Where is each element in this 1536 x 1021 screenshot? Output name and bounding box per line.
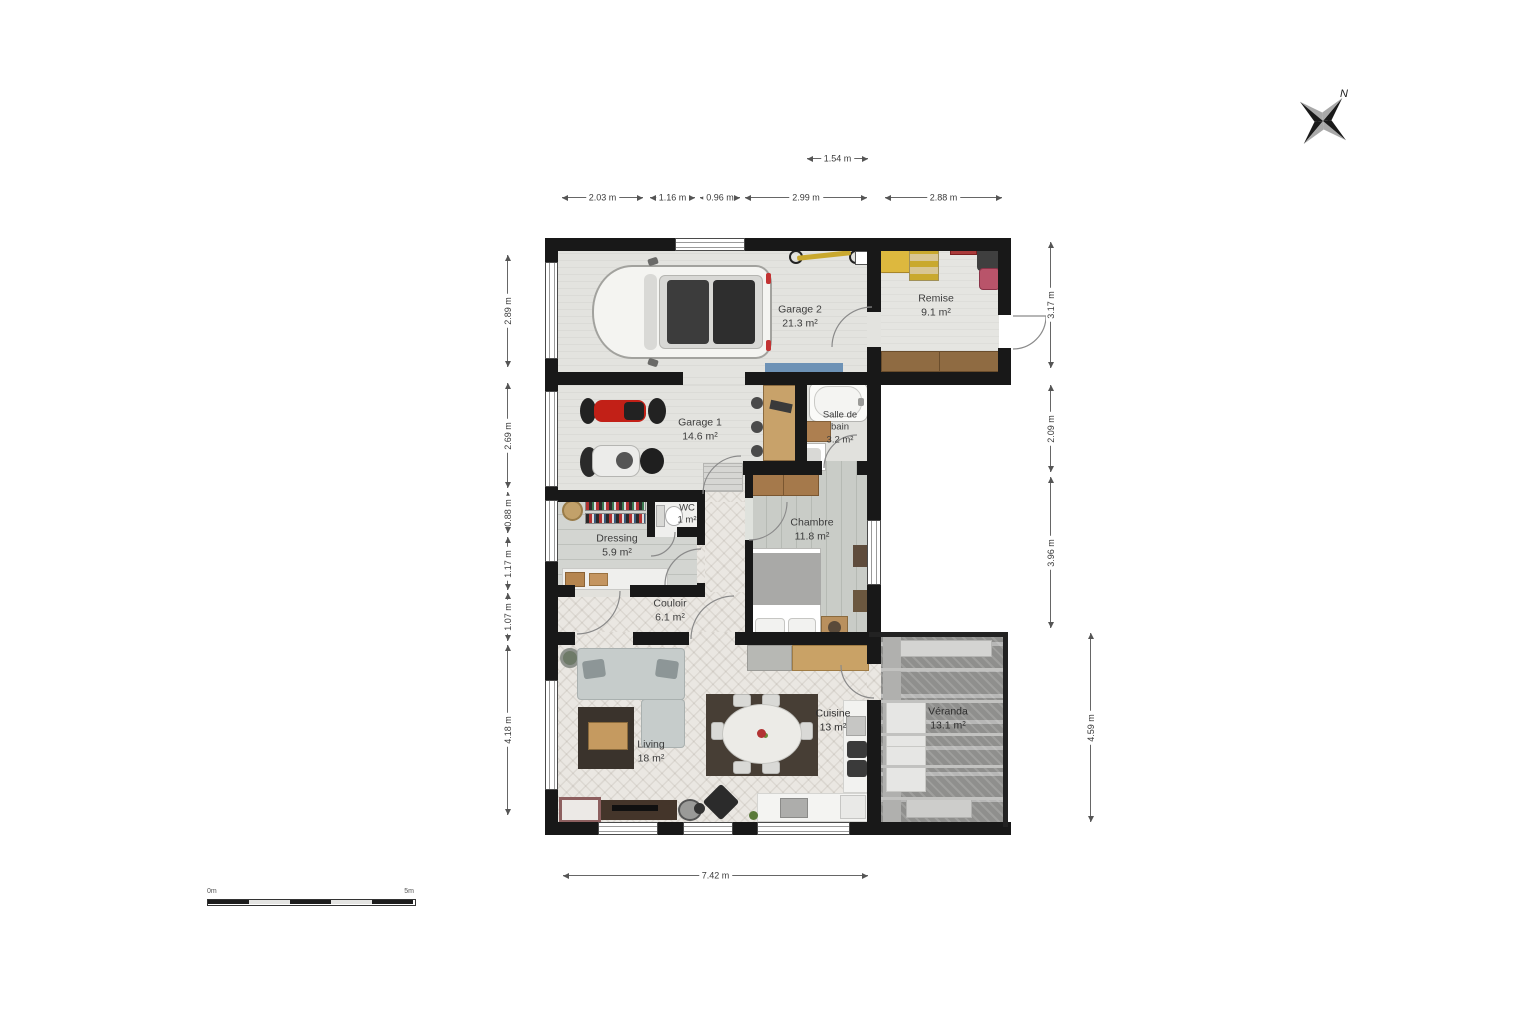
wall-segment [998,238,1011,315]
wall-segment [545,490,703,502]
window-garage2-top [675,238,745,251]
window-garage2-left [545,262,558,359]
wall-segment [545,585,575,597]
floor-plan: Garage 2 21.3 m² Remise 9.1 m² Garage 1 … [0,0,1536,1021]
garage1-label: Garage 1 14.6 m² [678,416,722,443]
armchair-pink [559,797,601,823]
wall-segment [857,461,869,475]
blue-mat [765,363,843,372]
wall-segment [633,632,689,645]
veranda-sofa [886,700,926,792]
veranda-mullion-2 [881,700,1003,703]
veranda-mullion-5 [881,797,1003,800]
dim-left-6: 4.18 m [507,645,508,815]
window-living-left [545,680,558,790]
wc-label: WC 1 m² [678,503,697,528]
bath-faucet [858,398,864,406]
kitchen-plant [749,811,758,820]
dim-left-5: 1.07 m [507,593,508,641]
wall-segment [743,461,822,475]
wall-segment [545,238,675,251]
wall-segment [697,490,705,545]
wall-segment [745,372,1011,385]
chambre-door-gap [745,498,753,540]
cuisine-label: Cuisine 13 m² [815,707,850,734]
scale-seg [249,900,290,904]
kitchen-appliance [780,798,808,818]
g2-remise-door-gap [867,312,881,347]
dim-left-4: 1.17 m [507,537,508,590]
toilet-tank [656,505,665,527]
garage2-label: Garage 2 21.3 m² [778,303,822,330]
clothes-rack-2 [585,513,646,524]
veranda-wall-right [1003,632,1008,827]
veranda-bench-bottom [906,799,972,818]
workbench [763,385,799,461]
wall-segment [545,632,575,645]
dim-bottom: 7.42 m [563,875,868,876]
dim-right-1: 3.17 m [1050,242,1051,368]
dressing-leg-door-gap [697,545,705,583]
scale-seg [372,900,413,904]
dressing-label: Dressing 5.9 m² [596,532,637,559]
couloir-label: Couloir 6.1 m² [653,597,686,624]
scale-start-label: 0m [207,888,217,895]
sofa-cushion-left [582,659,606,680]
cooktop-1 [847,741,867,758]
scale-end-label: 5m [404,888,414,895]
wall-segment [745,461,753,498]
wall-segment [658,822,683,835]
chambre-mat-2 [853,590,868,612]
chambre-mat-1 [853,545,868,567]
window-garage1-left [545,391,558,487]
window-cuisine-bottom [757,822,850,835]
workbench-stool-3 [751,445,763,457]
dim-top-3: 0.96 m [700,197,740,198]
moto-red-seat [624,402,644,420]
workbench-stool-1 [751,397,763,409]
remise-exterior-door-arc [1013,316,1046,349]
scale-seg [331,900,372,904]
dim-top-5: 2.88 m [885,197,1002,198]
moto-red-rear-wheel [648,398,666,424]
wall-segment [545,372,683,385]
moto-white-rear [640,448,664,474]
steps-mat [703,463,743,492]
wall-segment [745,540,753,645]
wall-segment [545,238,558,262]
veranda-mullion-3 [881,733,1003,736]
dim-top-4: 2.99 m [745,197,867,198]
moto-white-engine [616,452,633,469]
wall-segment [867,585,881,664]
wall-segment [850,822,1011,835]
dim-top-2: 1.16 m [650,197,695,198]
dim-top-inner: 1.54 m [807,158,868,159]
dim-right-3: 3.96 m [1050,477,1051,628]
window-living-bottom-2 [683,822,733,835]
dim-left-3: 0.88 m [507,492,508,533]
bed-duvet [751,553,821,605]
car-windshield [644,274,657,350]
wall-segment [735,632,869,645]
garage-opening [683,372,745,385]
veranda-label: Véranda 13.1 m² [928,705,968,732]
dining-chair-6 [800,722,813,740]
couloir-floor [557,592,747,637]
scale-seg [290,900,331,904]
veranda-mullion-1 [881,668,1003,671]
scale-bar-track [207,899,416,906]
dim-right-outer: 4.59 m [1090,633,1091,822]
couloir-leg-floor [703,490,745,597]
car-sunroof-front [667,280,709,344]
wall-segment [545,822,598,835]
salle-de-bain-label: Salle de bain 3.2 m² [816,409,864,446]
car-taillight-top [766,273,771,284]
veranda-wall-top [869,632,1008,637]
laundry-basket [562,500,583,521]
scale-seg [208,900,249,904]
wall-segment [545,562,558,680]
teapot [694,803,705,814]
coffee-table [588,722,628,750]
wall-segment [630,585,703,597]
dim-top-1: 2.03 m [562,197,643,198]
cooktop-2 [847,760,867,777]
window-living-bottom-1 [598,822,658,835]
kitchen-counter-top-wood [792,645,869,671]
corner-sink [840,795,866,819]
dim-left-2: 2.69 m [507,383,508,488]
wall-segment [867,238,881,312]
dressing-box-2 [589,573,608,586]
compass-north-label: N [1340,88,1348,100]
chambre-label: Chambre 11.8 m² [790,516,833,543]
window-chambre-right [867,520,881,585]
veranda-bench-top [900,640,992,657]
wardrobe [748,474,819,496]
sofa-cushion-right [655,659,679,680]
wall-segment [795,384,807,461]
dim-right-2: 2.09 m [1050,385,1051,472]
cuisine-door-gap [867,664,881,700]
veranda-mullion-4 [881,765,1003,768]
car-taillight-bottom [766,340,771,351]
window-dressing-left [545,500,558,562]
wall-segment [647,527,651,537]
tv [612,805,658,811]
workbench-stool-2 [751,421,763,433]
remise-shelf-divider [939,351,940,372]
fruit-bowl [757,729,766,738]
dim-left-1: 2.89 m [507,255,508,367]
remise-label: Remise 9.1 m² [918,292,954,319]
wall-segment [867,700,881,835]
car-sunroof-rear [713,280,755,344]
remise-shelf [881,351,999,372]
dining-chair-3 [733,761,751,774]
wall-segment [733,822,757,835]
mower-bag [979,268,1000,290]
living-label: Living 18 m² [637,738,664,765]
kitchen-counter-top-gray [747,645,792,671]
